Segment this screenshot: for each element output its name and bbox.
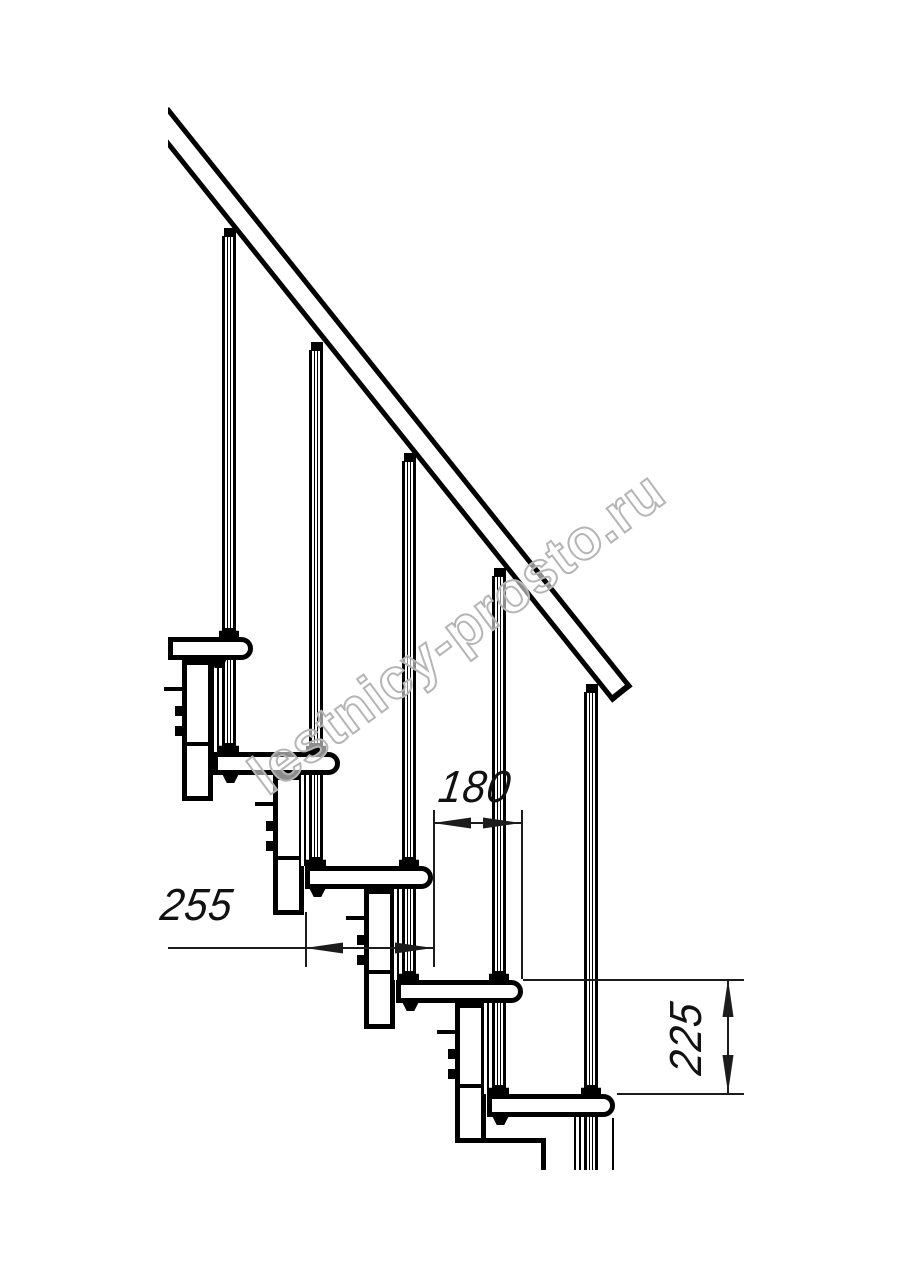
baluster-lower-4-wall — [497, 1003, 501, 1094]
spine-divider-4 — [459, 1084, 482, 1088]
arrow-255-left — [305, 942, 343, 954]
spine-tab-3 — [346, 916, 364, 920]
ext-line-255-left — [305, 912, 307, 967]
baluster-lower-4 — [492, 1003, 506, 1094]
spine-bolt-4a — [448, 1049, 457, 1059]
spine-divider-3 — [368, 970, 391, 974]
farside-baluster-3 — [392, 889, 399, 980]
dim-line-255 — [168, 947, 433, 949]
spine-divider-2 — [277, 856, 300, 860]
spine-bottom-extension — [486, 1138, 546, 1143]
spine-bolt-4b — [448, 1069, 457, 1079]
arrow-225-down — [722, 1055, 734, 1093]
dimension-label-225-wrap: 225 — [659, 982, 713, 1094]
baluster-cap-1 — [224, 228, 236, 237]
baluster-cap-2 — [311, 342, 323, 351]
dimension-label-180: 180 — [435, 761, 514, 813]
spine-tab-4 — [437, 1030, 455, 1034]
tread-3 — [305, 866, 433, 889]
spine-module-3 — [364, 889, 395, 1029]
under-nut-5 — [492, 1117, 509, 1125]
baluster-lower-3 — [402, 889, 416, 980]
dimension-label-225: 225 — [660, 998, 712, 1077]
baluster-cap-3 — [404, 453, 416, 462]
baluster-lower-2-wall — [314, 775, 318, 866]
spine-next-edge — [541, 1143, 546, 1170]
baluster-lower-2 — [309, 775, 323, 866]
under-nut-3 — [309, 889, 326, 897]
baluster-lower-5-wall — [589, 1117, 593, 1170]
nose-edge-line — [612, 1118, 614, 1170]
spine-bolt-2a — [266, 821, 275, 831]
spine-bolt-2b — [266, 841, 275, 851]
spine-bolt-3b — [357, 955, 366, 965]
spine-bolt-3a — [357, 935, 366, 945]
baluster-lower-3-wall — [407, 889, 411, 980]
baluster-cap-5 — [586, 684, 598, 693]
farside-baluster-5 — [574, 1117, 581, 1170]
tread-4 — [396, 980, 523, 1003]
ext-line-180-left — [433, 810, 435, 967]
dimension-label-255: 255 — [157, 879, 236, 931]
staircase-drawing: 180 255 225 lestnicy-prosto.ru — [0, 0, 914, 1280]
ext-line-225-top — [523, 979, 744, 981]
arrow-180-left — [433, 817, 471, 829]
farside-baluster-4 — [482, 1003, 489, 1094]
arrow-225-up — [722, 979, 734, 1017]
under-nut-4 — [402, 1003, 419, 1011]
tread-1 — [168, 637, 253, 660]
handrail — [168, 107, 633, 703]
baluster-lower-5 — [584, 1117, 598, 1170]
ext-line-180-right — [521, 810, 523, 979]
tread-5 — [487, 1094, 615, 1117]
